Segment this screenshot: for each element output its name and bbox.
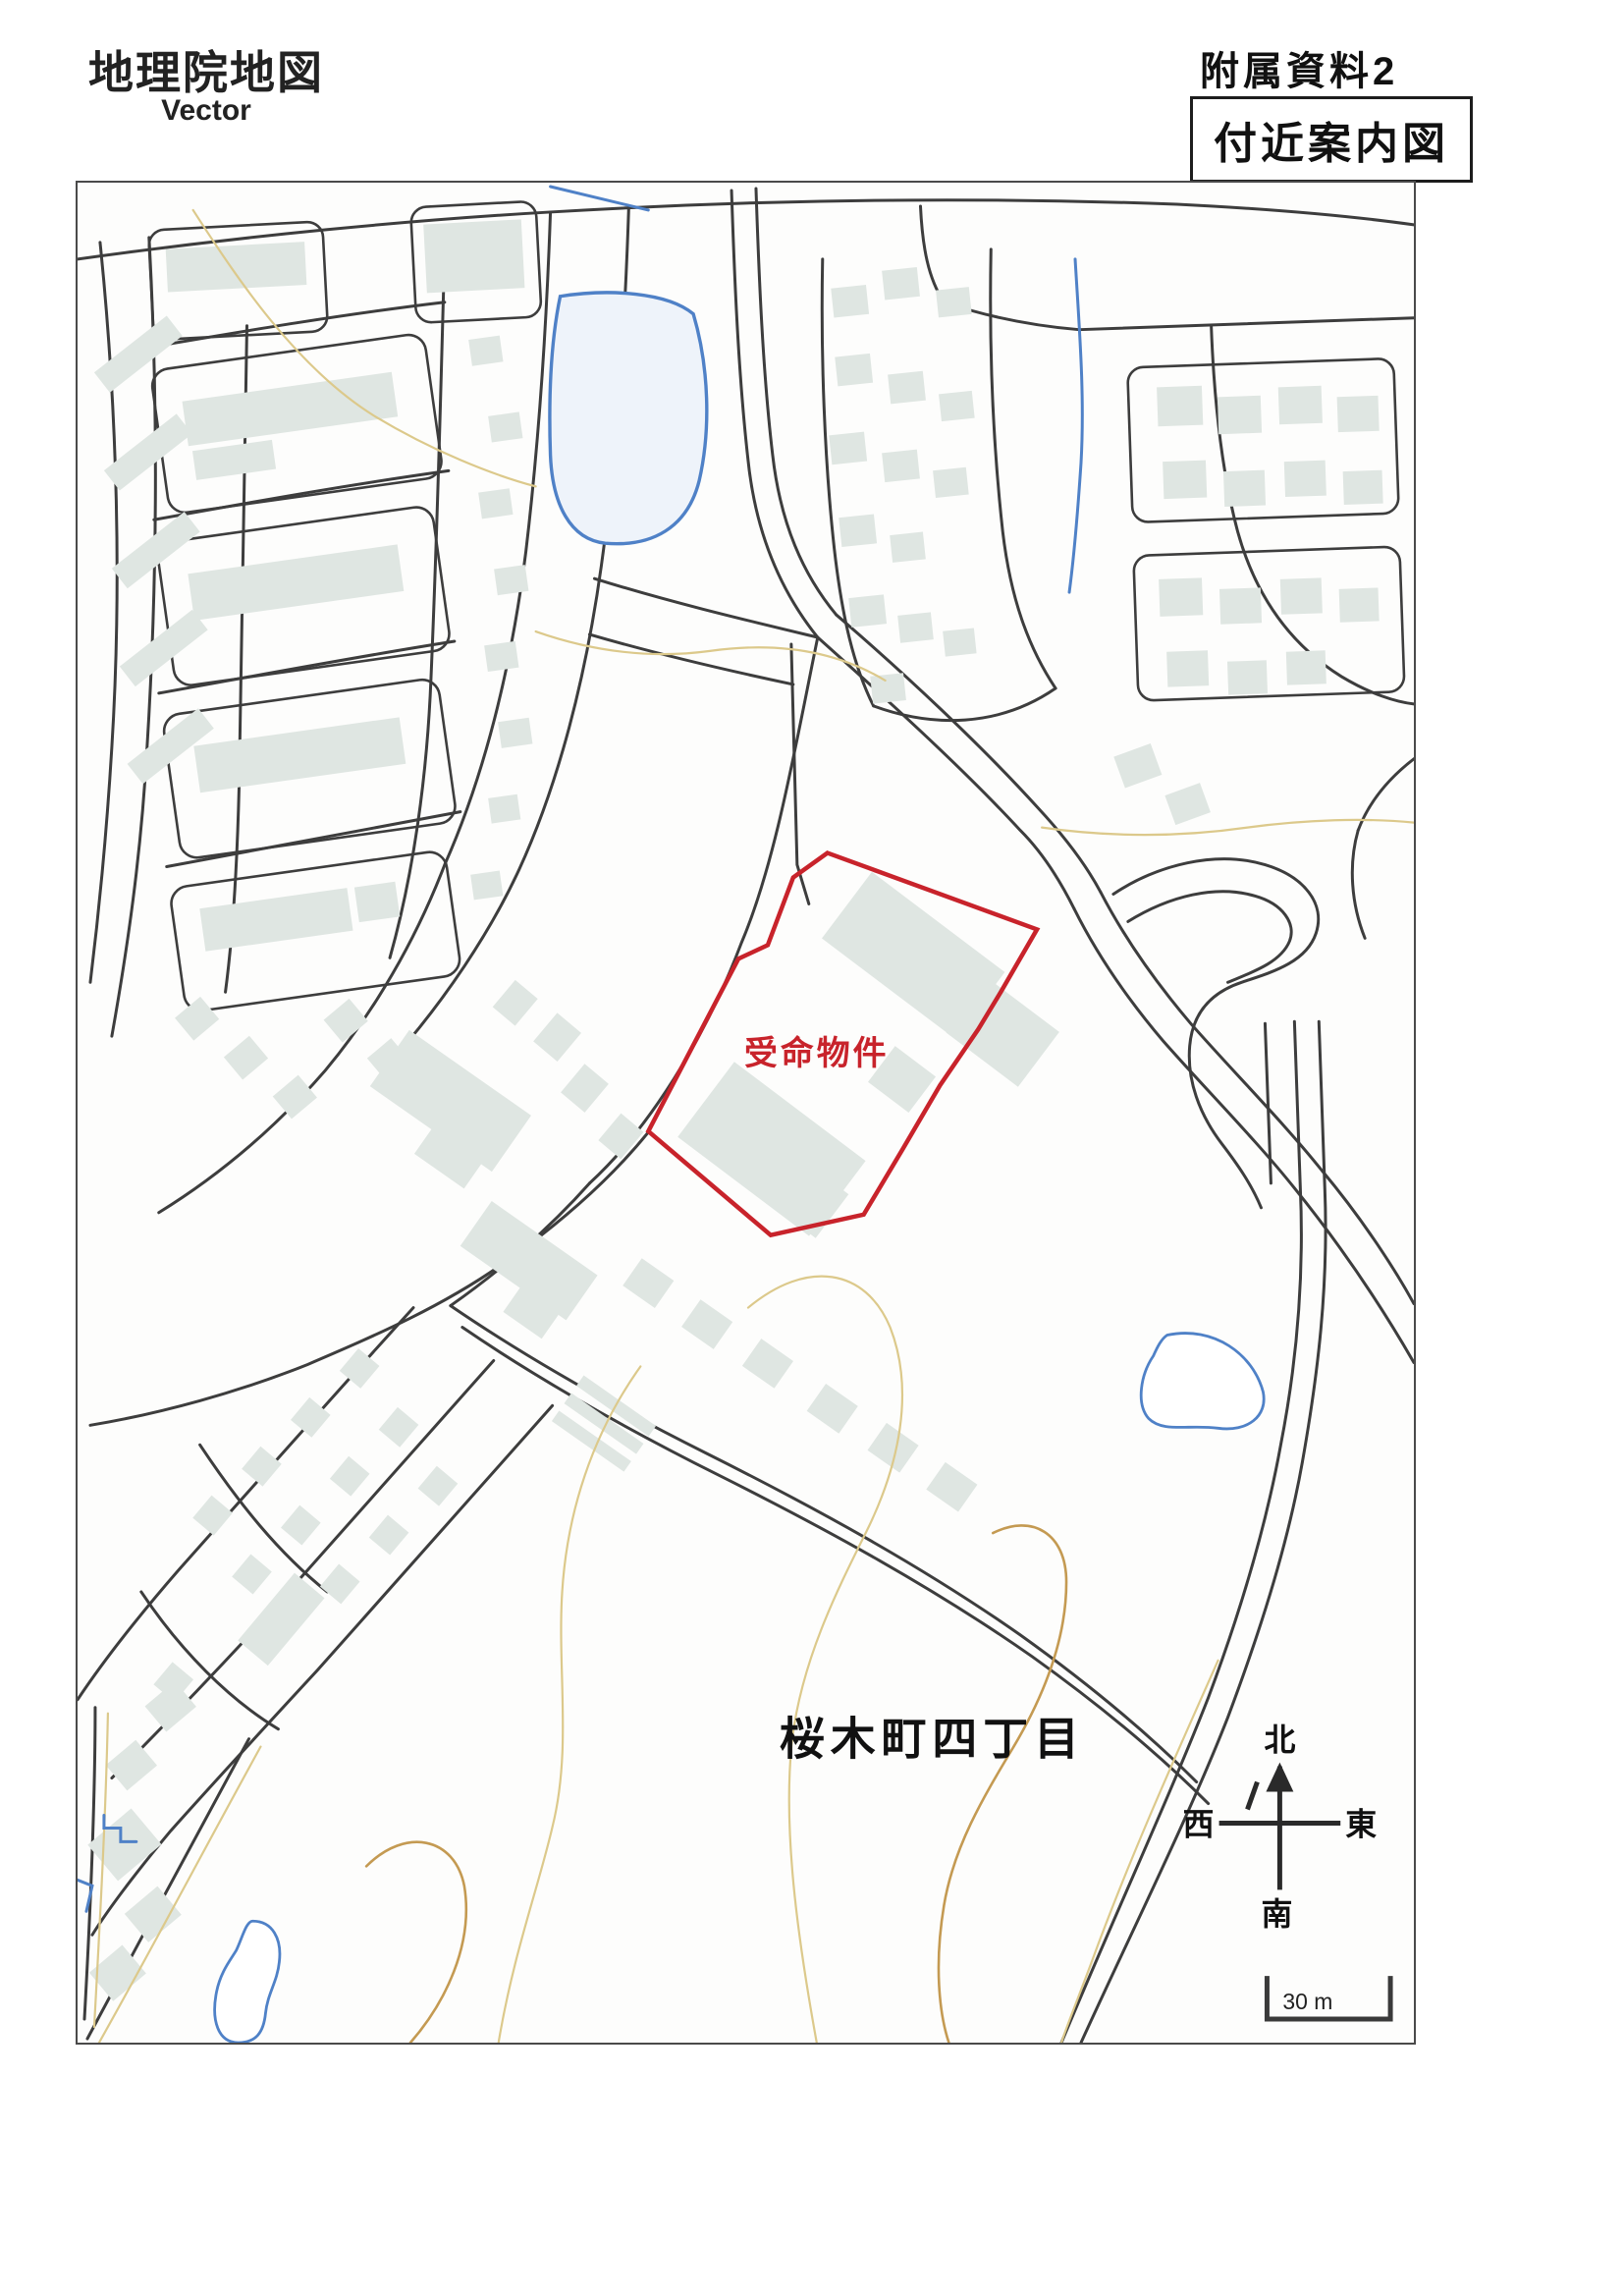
compass-label-north: 北 — [1264, 1722, 1295, 1758]
district-label: 桜木町四丁目 — [780, 1714, 1085, 1765]
page-subtitle: Vector — [59, 94, 353, 128]
pond-top — [550, 293, 707, 544]
attachment-label: 附属資料2 — [1200, 39, 1398, 96]
vicinity-map-page: 地理院地図 Vector 附属資料2 付近案内図 — [0, 0, 1624, 2296]
compass-arrow-icon — [1266, 1763, 1293, 1792]
compass-label-west: 西 — [1183, 1806, 1215, 1841]
stream-top — [551, 187, 649, 210]
map-canvas: 受命物件 桜木町四丁目 北 南 西 東 30 m — [76, 181, 1416, 2045]
scale-bar: 30 m — [1267, 1976, 1390, 2019]
scale-bar-label: 30 m — [1282, 1989, 1332, 2014]
map-title-box: 付近案内図 — [1190, 96, 1473, 183]
compass-label-south: 南 — [1261, 1896, 1292, 1932]
vicinity-map-svg: 受命物件 桜木町四丁目 北 南 西 東 30 m — [78, 183, 1414, 2043]
subject-property-label: 受命物件 — [744, 1034, 890, 1072]
page-title: 地理院地図 — [59, 37, 353, 102]
compass-tick — [1247, 1782, 1257, 1810]
pond-southwest — [215, 1921, 280, 2043]
stream — [1069, 259, 1082, 592]
pond-southeast — [1141, 1334, 1264, 1429]
compass-label-east: 東 — [1345, 1806, 1377, 1841]
